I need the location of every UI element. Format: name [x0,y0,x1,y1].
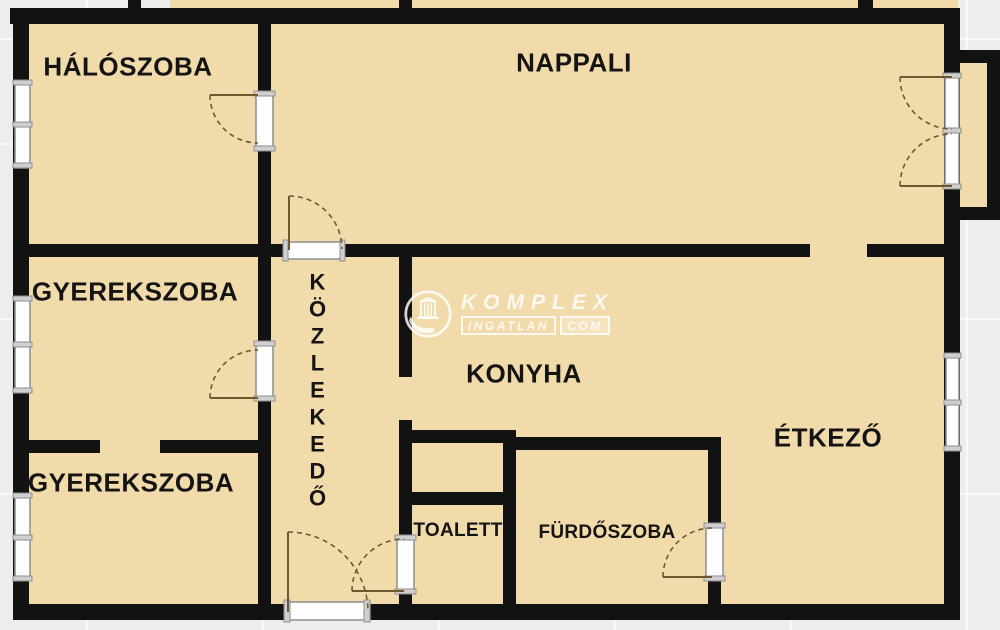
room-label-konyha: KONYHA [466,359,582,390]
room-label-etkezo: ÉTKEZŐ [774,423,882,454]
room-label-haloszoba: HÁLÓSZOBA [43,52,212,83]
wall-childrooms-left [29,440,100,453]
wall-bathroom-top [503,437,721,450]
room-label-nappali: NAPPALI [516,48,632,79]
wall-toilet-bathroom [503,430,516,604]
room-label-gyerekszoba1: GYEREKSZOBA [32,277,238,308]
wall-kitchen-bottom [399,430,516,443]
window-gyerekszoba1 [13,296,32,393]
room-label-gyerekszoba2: GYEREKSZOBA [28,468,234,499]
room-label-kozlekedo: KÖZLEKEDŐ [306,270,328,513]
door-frame-nappali [283,240,345,261]
wall-nappali-bottom-right [867,244,944,257]
wall-toilet-top [399,492,516,505]
window-etkezo [944,353,961,451]
door-frame-bathroom [704,523,725,581]
window-gyerekszoba2 [13,493,32,581]
door-frame-haloszoba [254,91,275,151]
door-frame-toilet [395,535,416,594]
room-label-furdoszoba: FÜRDŐSZOBA [538,522,675,544]
door-frame-entrance [284,600,370,622]
room-label-toalett: TOALETT [413,520,502,542]
balcony-door-frame [943,73,961,189]
wall-hall-kitchen-upper [399,257,412,377]
wall-nappali-bottom-left [29,244,810,257]
window-haloszoba [13,80,32,168]
wall-childrooms-right [160,440,271,453]
floorplan-screenshot: HÁLÓSZOBA NAPPALI GYEREKSZOBA GYEREKSZOB… [0,0,1000,630]
